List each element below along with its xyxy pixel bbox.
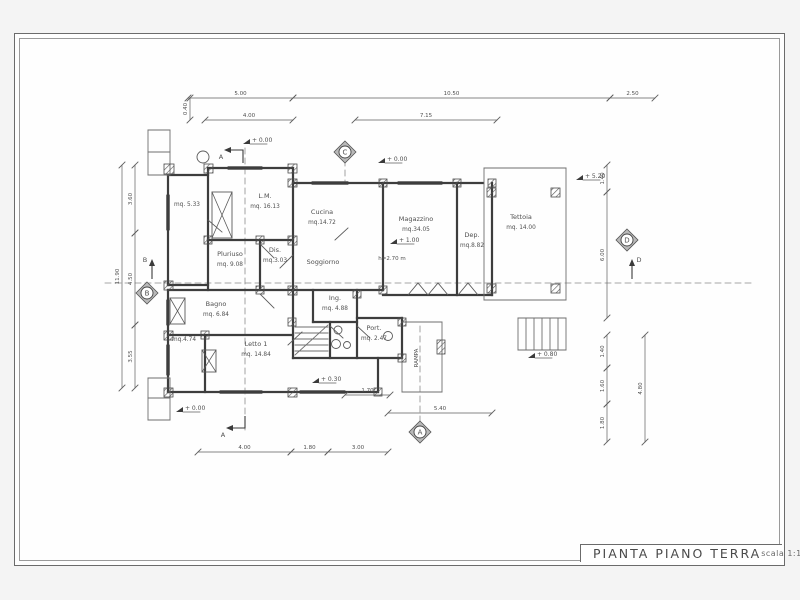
- wall-pier-hatched: [204, 164, 213, 173]
- dim-label: 1.70: [361, 388, 374, 394]
- room-area-label: mq. 2.47: [361, 336, 387, 342]
- dim-label: 10.50: [444, 91, 460, 97]
- section-letter: A: [418, 428, 423, 436]
- wall-pier-hatched: [379, 179, 387, 187]
- dim-label: 1.80: [600, 416, 606, 429]
- wall-pier-hatched: [288, 286, 297, 295]
- room-name-label: Dis.: [269, 246, 281, 254]
- dim-label: 1.60: [600, 379, 606, 392]
- level-marker-flag: [243, 139, 250, 144]
- wall-pier-hatched: [398, 318, 406, 326]
- wall-pier-hatched: [487, 188, 496, 197]
- level-label: + 1.00: [399, 237, 419, 244]
- room-name-label: Soggiorno: [307, 258, 340, 266]
- room-name-label: L.M.: [258, 192, 271, 200]
- door-leaf-line: [260, 294, 274, 308]
- dim-label: 0.40: [183, 102, 189, 115]
- fixture-circle: [197, 151, 209, 163]
- room-area-label: mq. 14.84: [241, 352, 271, 358]
- dim-label: 3.60: [128, 192, 134, 205]
- dim-label: 3.55: [128, 350, 134, 363]
- section-letter: B: [145, 289, 150, 297]
- wall-pier-hatched: [288, 388, 297, 397]
- room-name-label: Letto 1: [245, 340, 268, 348]
- dim-label: 5.00: [234, 91, 247, 97]
- drawing-scale: scala 1:100: [761, 549, 800, 558]
- drawing-title: PIANTA PIANO TERRA: [593, 546, 761, 561]
- level-label: + 0.80: [537, 351, 557, 358]
- section-arrow-line: [232, 416, 245, 428]
- dim-label: 1.80: [303, 445, 316, 451]
- section-arrow-head: [149, 259, 155, 266]
- wall-pier-hatched: [288, 179, 297, 187]
- wall-pier-hatched: [288, 164, 297, 173]
- section-arrow-letter: D: [636, 256, 641, 264]
- level-label: + 5.20: [585, 173, 605, 180]
- dim-label: 7.15: [420, 113, 433, 119]
- wall-pier-hatched: [551, 188, 560, 197]
- wall-pier-hatched: [256, 286, 264, 294]
- annotation-label: h=2.70 m: [378, 256, 405, 262]
- section-arrow-head: [629, 259, 635, 266]
- level-marker-flag: [378, 158, 385, 163]
- fixture-circle: [332, 340, 341, 349]
- level-label: + 0.30: [321, 376, 341, 383]
- wall-pier-hatched: [551, 284, 560, 293]
- room-area-label: mq. 4.88: [322, 306, 348, 312]
- dim-label: 6.00: [600, 248, 606, 261]
- dim-label: 3.00: [352, 445, 365, 451]
- thin-line: [295, 325, 328, 355]
- room-name-label: Pluriuso: [217, 250, 243, 258]
- room-area-label: mq.34.05: [402, 227, 430, 233]
- section-arrow-letter: B: [143, 256, 147, 264]
- wall-pier-hatched: [256, 236, 264, 244]
- section-arrow-letter: A: [221, 431, 226, 439]
- dim-label: 4.00: [243, 113, 256, 119]
- door-leaf-line: [335, 228, 348, 240]
- room-name-label: Ing.: [329, 294, 341, 302]
- dim-label: 5.40: [434, 406, 447, 412]
- room-name-label: Cucina: [311, 208, 333, 216]
- fixture-circle: [344, 342, 351, 349]
- wall-pier-hatched: [164, 164, 174, 174]
- level-marker-flag: [528, 353, 535, 358]
- section-arrow-letter: A: [219, 153, 224, 161]
- level-label: + 0.00: [252, 137, 272, 144]
- section-arrow-line: [230, 150, 243, 163]
- wall-pier-hatched: [164, 281, 173, 290]
- level-marker-flag: [176, 407, 183, 412]
- wall-pier-hatched: [164, 388, 173, 397]
- room-name-label: Tettoia: [509, 213, 532, 221]
- level-label: + 0.00: [387, 156, 407, 163]
- dim-label: 11.90: [115, 268, 121, 284]
- wall-pier-hatched: [488, 179, 496, 187]
- room-area-label: mq.3.03: [263, 258, 287, 264]
- wall-pier-hatched: [288, 236, 297, 245]
- title-block: PIANTA PIANO TERRA scala 1:100: [580, 544, 782, 562]
- door-swing-vee: [428, 283, 448, 295]
- room-name-label: Dep.: [464, 231, 479, 239]
- wall-pier-hatched: [437, 340, 445, 354]
- room-area-label: mq. 9.08: [217, 262, 243, 268]
- wall-pier-hatched: [353, 290, 361, 298]
- wall-pier-hatched: [487, 284, 496, 293]
- room-area-label: mq.8.82: [460, 243, 484, 249]
- floor-plan-drawing: 5.0010.502.504.007.154.001.803.005.401.7…: [0, 0, 800, 600]
- wall-pier-hatched: [453, 179, 461, 187]
- level-marker-flag: [576, 175, 583, 180]
- room-area-label: mq. 16.13: [250, 204, 280, 210]
- wall-pier-hatched: [288, 318, 296, 326]
- room-area-label: mq.14.72: [308, 220, 336, 226]
- section-arrow-head: [224, 147, 231, 153]
- dim-label: 2.50: [626, 91, 639, 97]
- room-area-label: mq. 6.84: [203, 312, 229, 318]
- door-swing-vee: [458, 283, 478, 295]
- room-area-label: mq. 14.00: [506, 225, 536, 231]
- level-marker-flag: [312, 378, 319, 383]
- section-letter: C: [343, 148, 348, 156]
- dim-label: 1.40: [600, 345, 606, 358]
- scanned-sheet: 5.0010.502.504.007.154.001.803.005.401.7…: [0, 0, 800, 600]
- level-label: + 0.00: [185, 405, 205, 412]
- section-arrow-head: [226, 425, 233, 431]
- dim-label: 4.50: [128, 272, 134, 285]
- wall-pier-hatched: [201, 331, 209, 339]
- annotation-label: RAMPA: [414, 348, 420, 367]
- dim-label: 4.00: [238, 445, 251, 451]
- wall-pier-hatched: [398, 354, 406, 362]
- level-marker-flag: [390, 239, 397, 244]
- room-name-label: Bagno: [206, 300, 227, 308]
- wall-pier-hatched: [379, 286, 387, 294]
- room-name-label: Magazzino: [399, 215, 433, 223]
- door-swing-vee: [408, 283, 428, 295]
- section-letter: D: [624, 236, 629, 244]
- room-name-label: Port.: [367, 324, 382, 332]
- dim-label: 4.80: [638, 382, 644, 395]
- wall-pier-hatched: [204, 236, 212, 244]
- room-area-label: mq. 5.33: [174, 202, 200, 208]
- room-area-label: mq.4.74: [172, 337, 196, 343]
